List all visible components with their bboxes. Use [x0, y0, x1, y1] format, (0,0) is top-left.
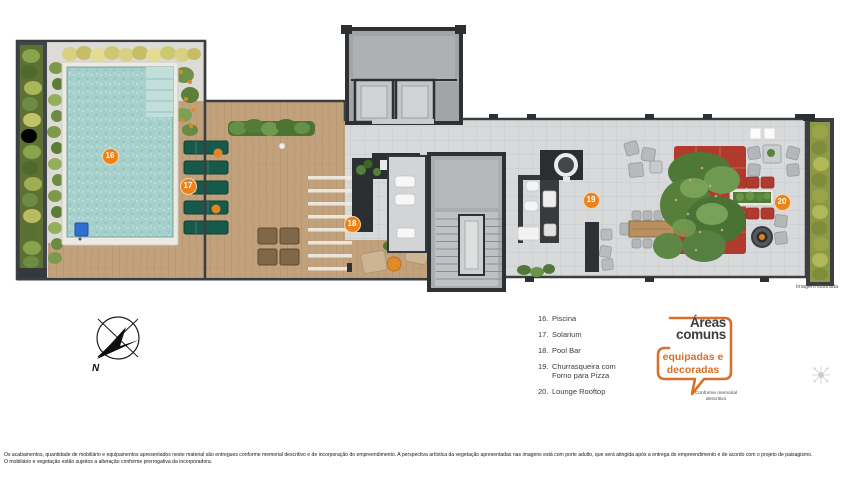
skylight: [764, 128, 775, 139]
areas-comuns-badge: Áreas comuns equipadas e decoradas Confo…: [653, 310, 749, 408]
legend-item-pool-bar: 18. Pool Bar: [538, 346, 650, 355]
island: [585, 222, 599, 272]
plan-marker-piscina: 16: [102, 148, 119, 165]
plan-marker-churrasqueira: 19: [583, 192, 600, 209]
disclaimer-line2: O mobiliário e vegetação estão sujeitos …: [4, 459, 848, 466]
side-table: [212, 205, 221, 214]
compass-rose-icon: N: [88, 306, 152, 376]
legend-item-lounge: 20. Lounge Rooftop: [538, 387, 650, 396]
plan-marker-solarium: 17: [180, 178, 197, 195]
elevator-tower: [341, 25, 466, 124]
plan-caption: Imagem ilustrada: [756, 284, 838, 290]
legend-number: 16.: [538, 314, 552, 323]
north-arrow: [97, 327, 139, 359]
badge-subtitle: equipadas e decoradas: [661, 351, 725, 377]
legend-item-piscina: 16. Piscina: [538, 314, 650, 323]
rooftop-plan-page: 16 17 18 19 20 Imagem ilustrada N 16. Pi…: [0, 0, 851, 480]
perimeter-hedge: [803, 114, 834, 286]
legend-label: Pool Bar: [552, 346, 581, 355]
badge-subtitle-line2: decoradas: [661, 364, 725, 377]
legend-number: 18.: [538, 346, 552, 355]
deck-hedge: [228, 119, 315, 136]
fire-pit: [752, 227, 772, 247]
legend-item-churrasqueira: 19. Churrasqueira com Forno para Pizza: [538, 362, 650, 381]
vertical-garden: [16, 41, 47, 279]
plan-marker-lounge: 20: [774, 194, 791, 211]
skylight: [750, 128, 761, 139]
plan-marker-pool-bar: 18: [344, 216, 361, 233]
umbrella: [279, 143, 285, 149]
pool-steps: [146, 67, 173, 117]
rooftop-floorplan: [0, 0, 851, 480]
legend-item-solarium: 17. Solarium: [538, 330, 650, 339]
badge-subtitle-line1: equipadas e: [661, 351, 725, 364]
starburst-icon: [806, 360, 836, 390]
badge-note: Conforme memorial descritivo: [691, 391, 741, 403]
footer-disclaimer: Os acabamentos, quantidade de mobiliário…: [4, 452, 848, 466]
plan-legend: 16. Piscina 17. Solarium 18. Pool Bar 19…: [538, 314, 650, 396]
legend-label: Lounge Rooftop: [552, 387, 605, 396]
legend-number: 20.: [538, 387, 552, 396]
legend-number: 19.: [538, 362, 552, 381]
badge-title-line2: comuns: [653, 329, 726, 341]
pouf: [387, 257, 401, 271]
pool-lift: [75, 223, 88, 236]
compass-north-label: N: [92, 363, 100, 374]
badge-title: Áreas comuns: [653, 317, 726, 341]
stair-core: [429, 154, 504, 290]
legend-label: Solarium: [552, 330, 582, 339]
side-table: [214, 149, 223, 158]
legend-label: Piscina: [552, 314, 576, 323]
pool: [62, 62, 178, 245]
disclaimer-line1: Os acabamentos, quantidade de mobiliário…: [4, 452, 848, 459]
legend-label: Churrasqueira com Forno para Pizza: [552, 362, 622, 381]
pizza-oven: [556, 155, 576, 175]
restrooms: [388, 156, 426, 252]
legend-number: 17.: [538, 330, 552, 339]
